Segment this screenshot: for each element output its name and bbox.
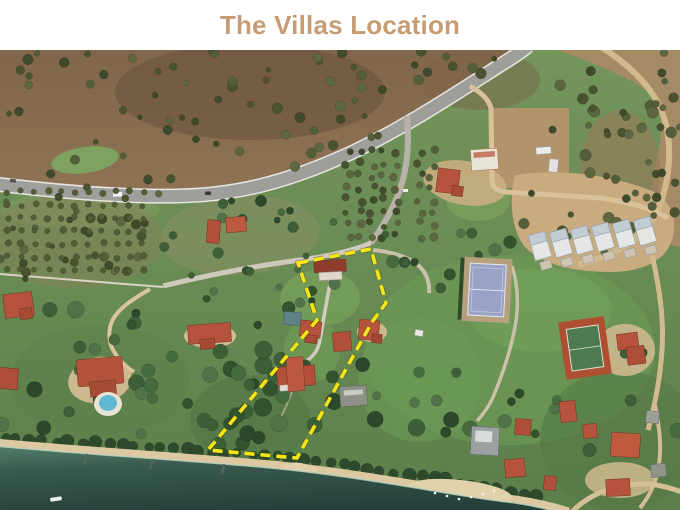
- slide-header: The Villas Location: [0, 0, 680, 50]
- modern-grey-villa: [470, 426, 499, 455]
- slide: The Villas Location: [0, 0, 680, 510]
- satellite-map-image: [0, 50, 680, 510]
- tennis-court-blue: [457, 257, 512, 324]
- page-title: The Villas Location: [220, 10, 460, 41]
- swimming-pool: [99, 395, 117, 411]
- white-building: [470, 148, 498, 171]
- grey-house: [339, 385, 367, 407]
- satellite-map: [0, 50, 680, 510]
- tennis-court-clay: [558, 316, 612, 380]
